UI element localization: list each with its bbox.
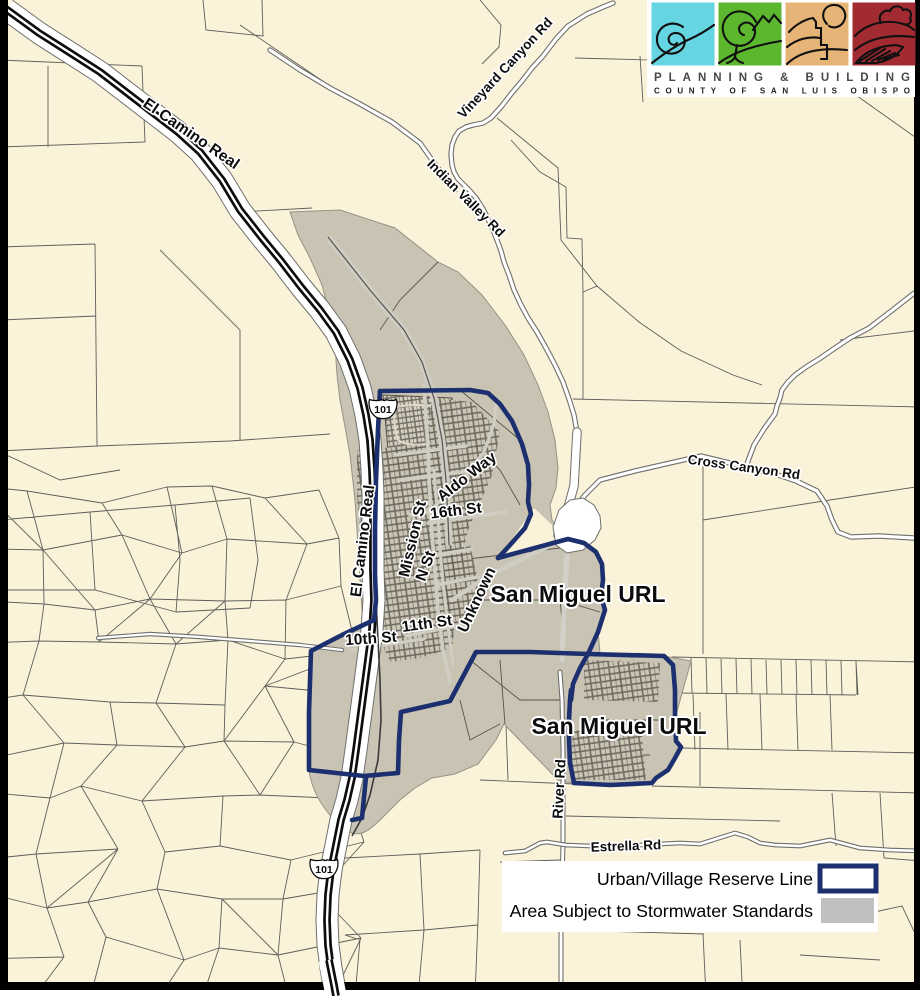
svg-text:San Miguel URL: San Miguel URL bbox=[490, 581, 665, 607]
svg-text:10th St: 10th St bbox=[345, 629, 398, 650]
svg-text:101: 101 bbox=[374, 404, 392, 416]
svg-text:Urban/Village Reserve Line: Urban/Village Reserve Line bbox=[597, 869, 813, 889]
svg-text:Area Subject to Stormwater Sta: Area Subject to Stormwater Standards bbox=[510, 901, 814, 921]
svg-text:101: 101 bbox=[315, 864, 333, 876]
svg-text:San Miguel URL: San Miguel URL bbox=[531, 713, 706, 739]
svg-text:Estrella Rd: Estrella Rd bbox=[590, 837, 661, 854]
svg-text:River Rd: River Rd bbox=[550, 759, 569, 819]
